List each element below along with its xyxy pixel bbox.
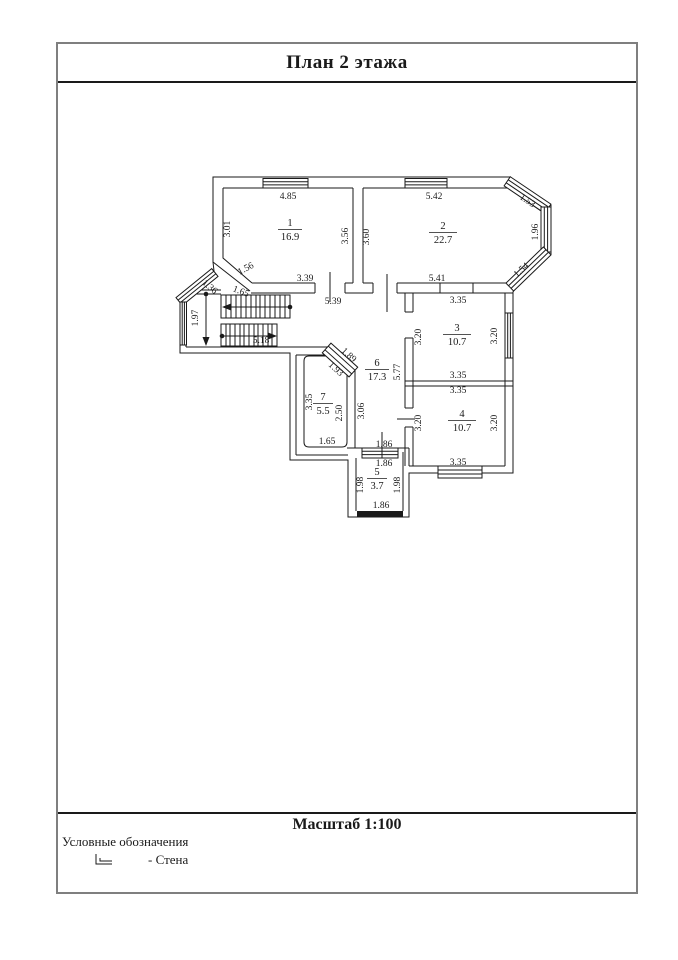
dim-r1-bottom: 3.39 — [297, 274, 314, 284]
window-room1-top — [263, 179, 308, 189]
dim-r1-right: 3.56 — [341, 227, 351, 244]
dim-r3-left: 3.20 — [414, 328, 424, 345]
window-stair-left — [180, 302, 187, 345]
room-label-1: 1 16.9 — [278, 218, 302, 243]
drawing-page: План 2 этажа Масштаб 1:100 Условные обоз… — [0, 0, 678, 960]
dim-r2-bottom: 5.41 — [429, 274, 446, 284]
dim-r5-bottom: 1.86 — [373, 501, 390, 511]
dim-r7-left: 3.35 — [305, 393, 315, 410]
room3-number: 3 — [454, 323, 459, 334]
dim-r2-left: 3.60 — [362, 228, 372, 245]
room-label-5: 5 3.7 — [367, 467, 387, 492]
dim-hall-top: 5.39 — [325, 297, 342, 307]
dim-r1-left: 3.01 — [223, 220, 233, 237]
wall-filled-room5-bottom — [357, 511, 403, 517]
dim-r5-left: 1.98 — [356, 476, 366, 493]
dim-stair-width: 1.97 — [191, 309, 201, 326]
room7-number: 7 — [320, 392, 325, 403]
dim-r2-top: 5.42 — [426, 192, 443, 202]
dim-r5-top-in: 1.86 — [376, 459, 393, 469]
dim-r7-right: 2.50 — [335, 404, 345, 421]
room-label-7: 7 5.5 — [313, 392, 333, 417]
room2-area: 22.7 — [434, 235, 452, 246]
dim-stair-run: 5.18 — [253, 336, 270, 346]
staircase — [203, 292, 293, 346]
dim-r3-right: 3.20 — [490, 327, 500, 344]
room-label-3: 3 10.7 — [443, 323, 471, 348]
dim-r4-top: 3.35 — [450, 386, 467, 396]
room5-area: 3.7 — [370, 481, 383, 492]
room4-number: 4 — [459, 409, 465, 420]
dim-r3-bottom: 3.35 — [450, 371, 467, 381]
room-label-2: 2 22.7 — [429, 221, 457, 246]
dim-hall-height: 5.77 — [393, 363, 403, 380]
stair-width-arrow — [203, 292, 210, 346]
dim-r3-top: 3.35 — [450, 296, 467, 306]
dim-bay-right: 1.96 — [531, 223, 541, 240]
dim-r4-left: 3.20 — [414, 414, 424, 431]
room7-area: 5.5 — [316, 406, 329, 417]
room1-number: 1 — [287, 218, 292, 229]
dim-r7-bottom: 1.65 — [319, 437, 336, 447]
room3-area: 10.7 — [448, 337, 466, 348]
room4-area: 10.7 — [453, 423, 471, 434]
window-room2-top — [405, 179, 447, 189]
dim-hall-width: 3.06 — [357, 402, 367, 419]
dim-r4-bottom: 3.35 — [450, 458, 467, 468]
room6-number: 6 — [374, 358, 379, 369]
room2-number: 2 — [440, 221, 445, 232]
dim-r5-top-out: 1.86 — [376, 440, 393, 450]
stair-direction-arrow-upper — [222, 304, 292, 311]
dim-r1-diag: 1.56 — [236, 261, 256, 278]
dim-r5-right: 1.98 — [393, 476, 403, 493]
window-room3-right — [505, 313, 513, 358]
room-label-4: 4 10.7 — [448, 409, 476, 434]
room6-area: 17.3 — [368, 372, 386, 383]
floor-plan: 1 16.9 2 22.7 3 10.7 4 10.7 5 — [0, 0, 678, 960]
walls — [180, 177, 551, 517]
dim-stair-top: 1.65 — [231, 285, 250, 300]
dim-r4-right: 3.20 — [490, 414, 500, 431]
dimension-labels: 4.85 5.42 3.01 3.56 3.60 1.53 1.96 1.54 … — [191, 192, 541, 511]
room-label-6: 6 17.3 — [365, 358, 389, 383]
dim-r1-top: 4.85 — [280, 192, 297, 202]
room1-area: 16.9 — [281, 232, 299, 243]
window-bay-right — [541, 207, 551, 252]
